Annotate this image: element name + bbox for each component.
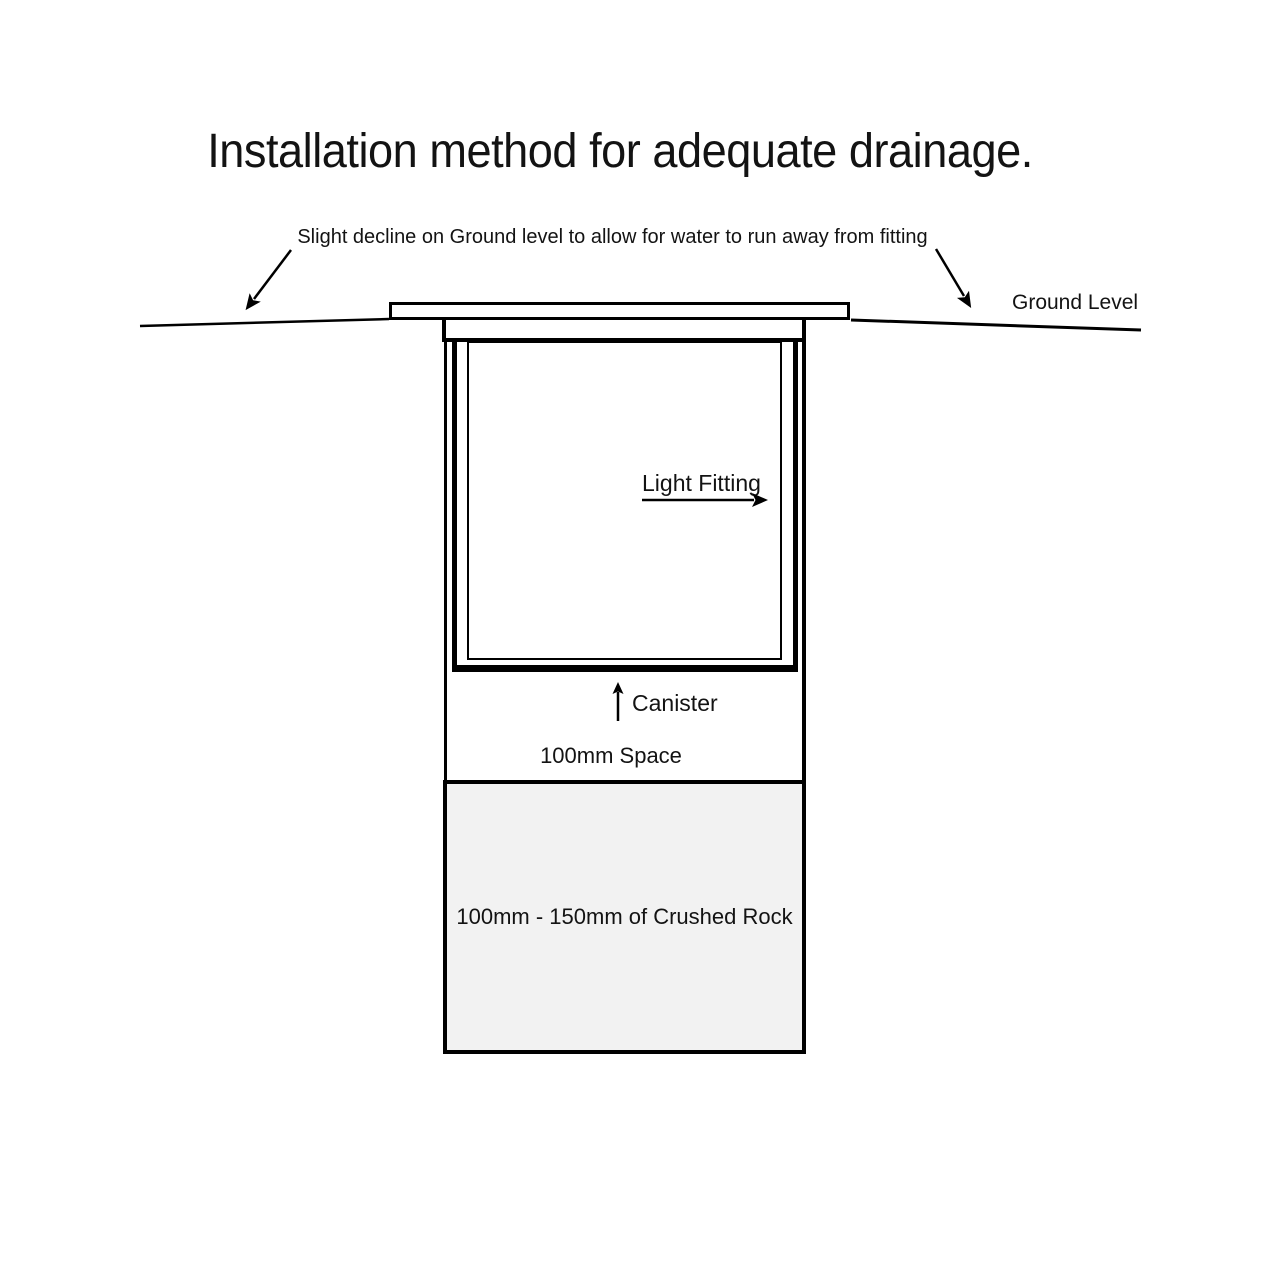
decline-arrow-right xyxy=(936,249,964,296)
light-fitting-box xyxy=(467,341,782,660)
ground-line-left xyxy=(140,319,389,326)
crushed-rock-layer: 100mm - 150mm of Crushed Rock xyxy=(443,780,806,1054)
ground-level-label: Ground Level xyxy=(1012,291,1138,315)
decline-arrow-left xyxy=(254,250,291,299)
diagram-canvas: Installation method for adequate drainag… xyxy=(0,0,1281,1281)
crushed-rock-label: 100mm - 150mm of Crushed Rock xyxy=(456,904,792,930)
space-label: 100mm Space xyxy=(444,743,778,769)
light-fitting-label: Light Fitting xyxy=(642,470,761,497)
diagram-title: Installation method for adequate drainag… xyxy=(37,124,1203,179)
decline-annotation: Slight decline on Ground level to allow … xyxy=(0,226,1225,249)
canister-label: Canister xyxy=(632,690,718,717)
fitting-flange-plate xyxy=(389,302,850,320)
ground-line-right xyxy=(851,320,1141,330)
fitting-collar xyxy=(442,319,806,342)
